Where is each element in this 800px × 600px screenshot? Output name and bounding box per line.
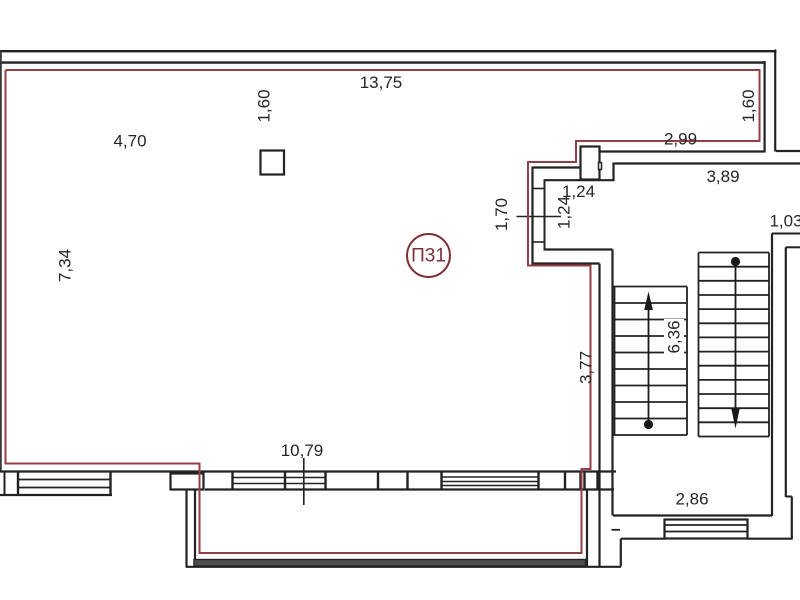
svg-text:П31: П31 <box>411 246 446 267</box>
svg-text:2,99: 2,99 <box>664 130 697 149</box>
svg-text:7,34: 7,34 <box>56 249 75 282</box>
svg-text:10,79: 10,79 <box>281 441 324 460</box>
svg-text:3,77: 3,77 <box>577 351 596 384</box>
svg-text:1,03: 1,03 <box>769 212 800 231</box>
svg-text:1,24: 1,24 <box>555 196 574 229</box>
svg-text:1,60: 1,60 <box>255 89 274 122</box>
svg-text:6,36: 6,36 <box>665 320 684 353</box>
svg-text:3,89: 3,89 <box>706 167 739 186</box>
svg-text:2,86: 2,86 <box>675 490 708 509</box>
svg-text:1,70: 1,70 <box>492 198 511 231</box>
svg-text:13,75: 13,75 <box>360 73 403 92</box>
svg-text:4,70: 4,70 <box>113 132 146 151</box>
svg-text:1,60: 1,60 <box>739 89 758 122</box>
